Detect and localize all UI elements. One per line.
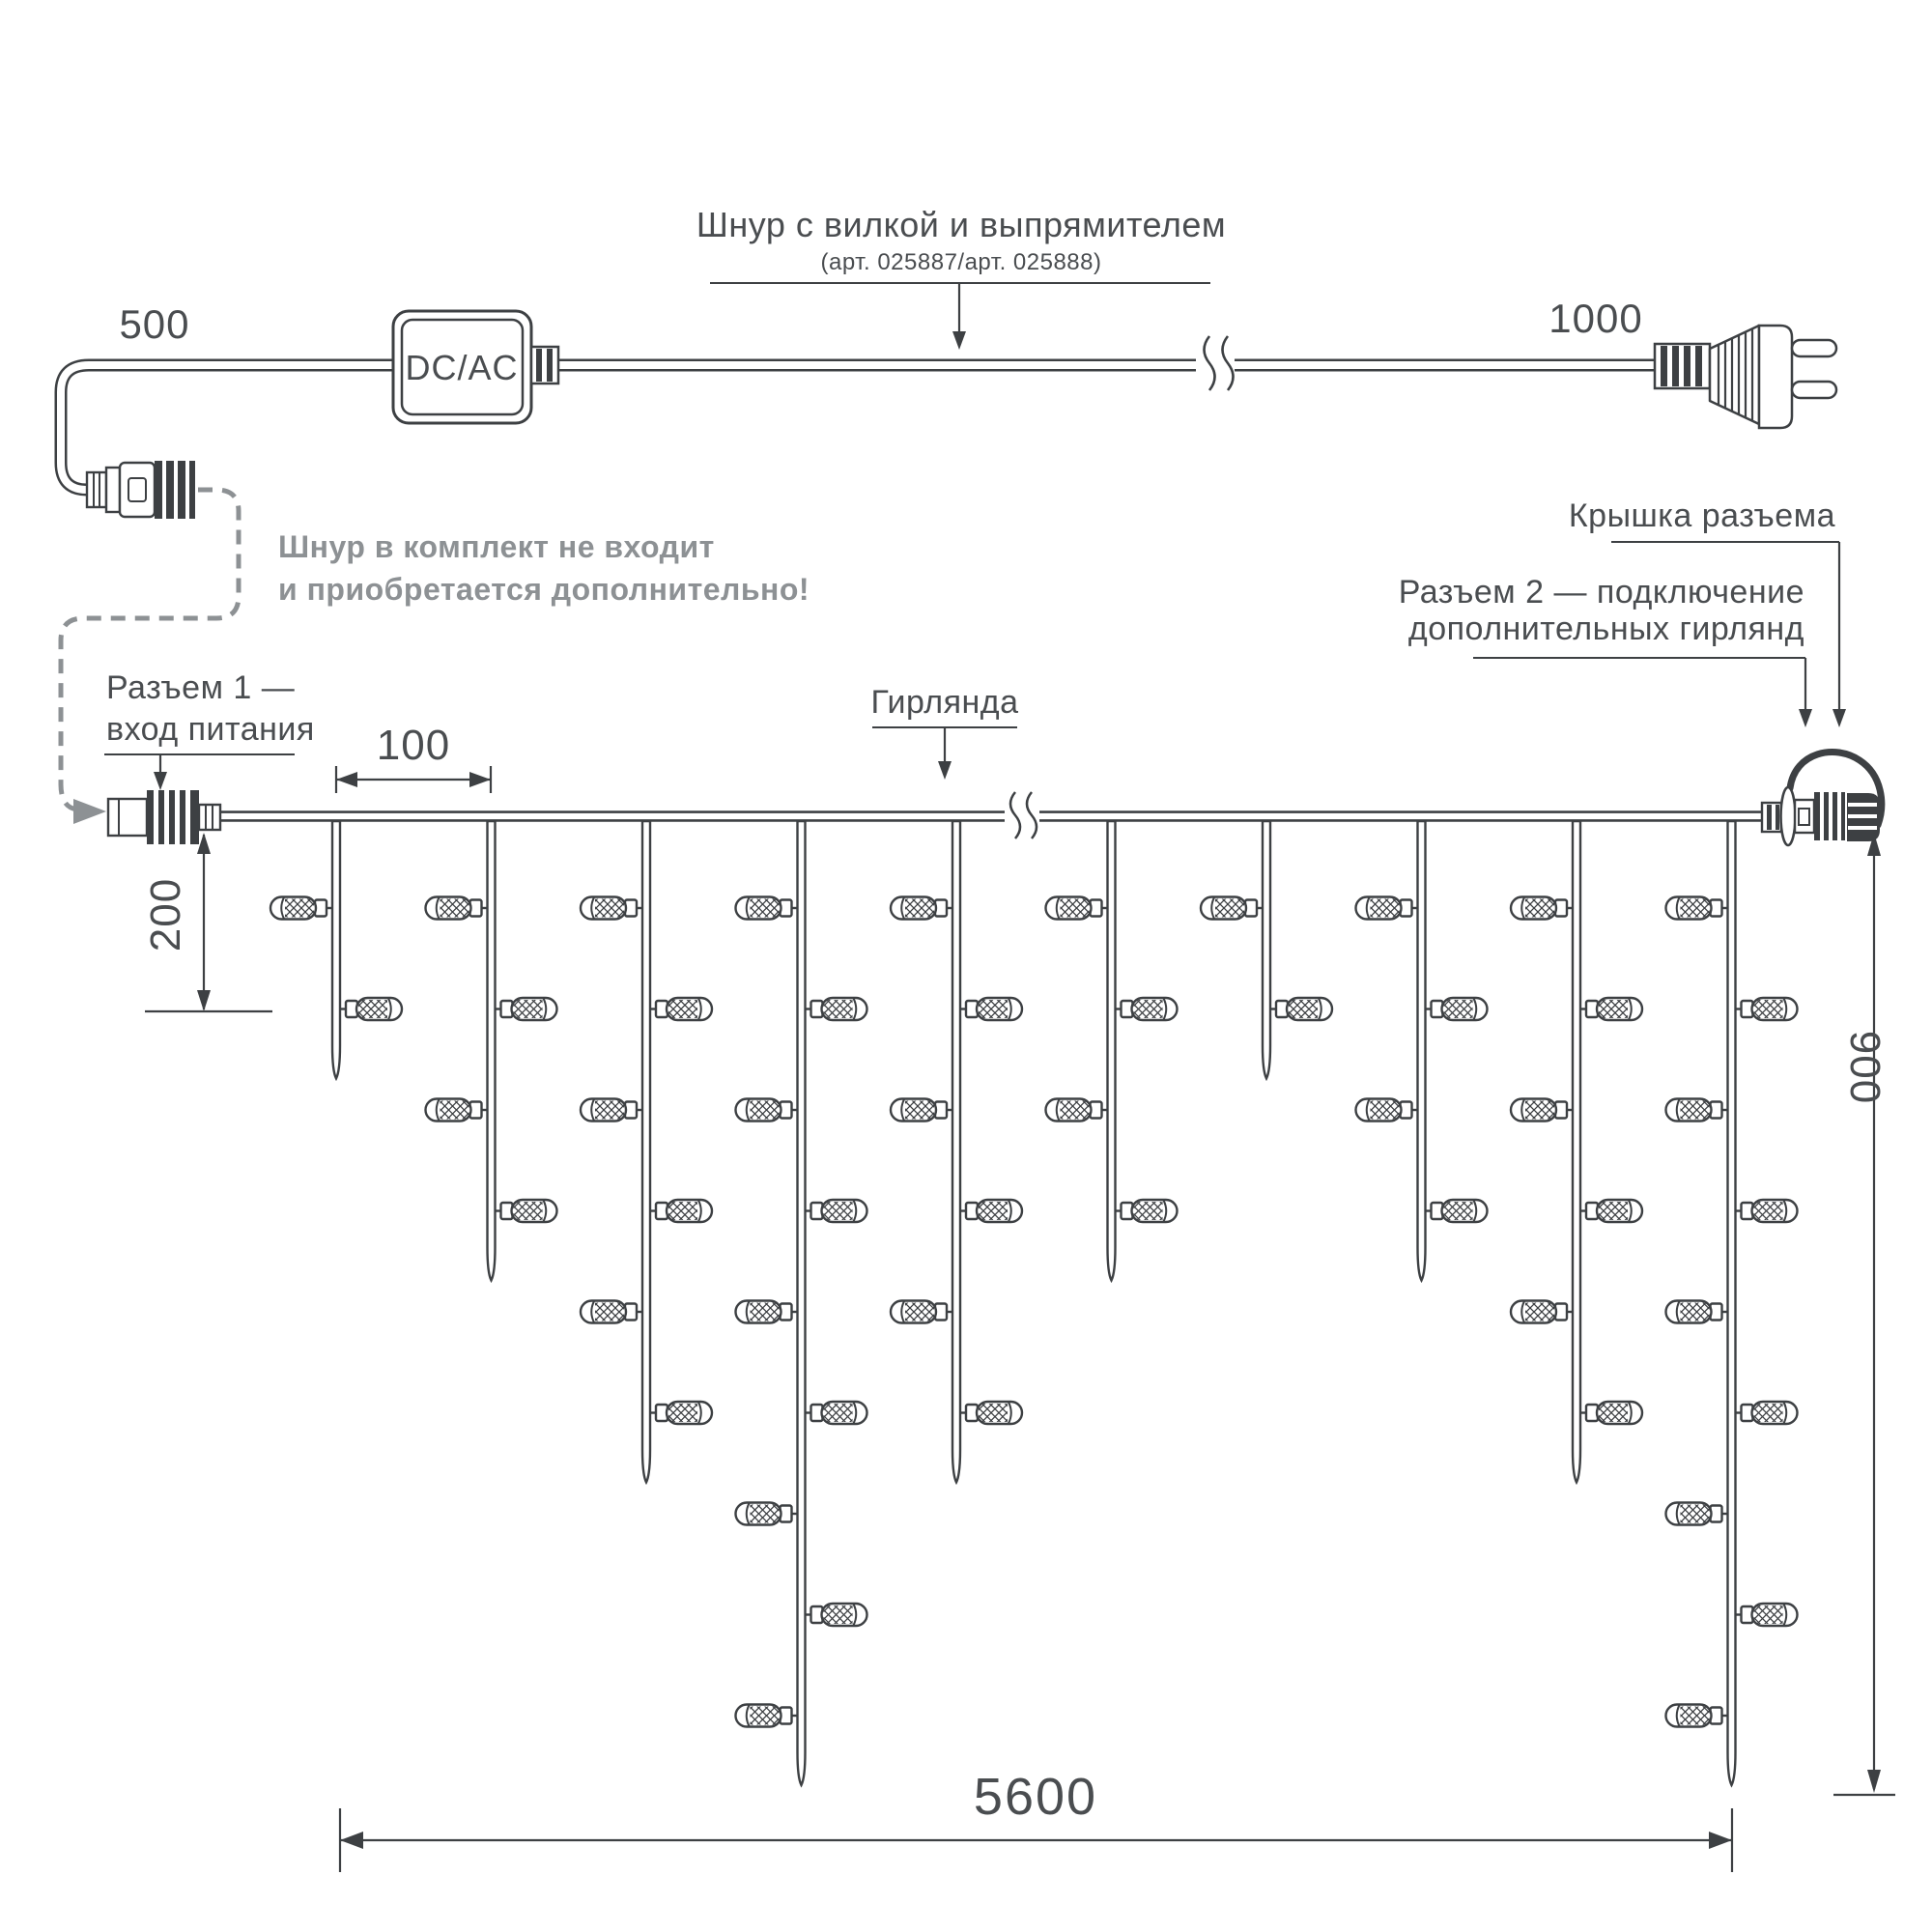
bulb-right-icon: [1270, 998, 1332, 1020]
power-cord-connector: [87, 461, 195, 519]
bulb-right-icon: [1736, 1604, 1798, 1626]
bulb-right-icon: [1426, 998, 1488, 1020]
arrow-down-icon: [1833, 709, 1846, 727]
bulb-left-icon: [1666, 1705, 1728, 1727]
connector1-label-line2: вход питания: [106, 711, 315, 748]
bulb-right-icon: [806, 998, 867, 1020]
connector2-callout: Разъем 2 — подключение дополнительных ги…: [1399, 574, 1812, 727]
note-line2: и приобретается дополнительно!: [278, 572, 810, 607]
bulb-right-icon: [1736, 998, 1798, 1020]
garland-drop: [1263, 821, 1270, 1079]
connector2-label-line1: Разъем 2 — подключение: [1399, 574, 1804, 611]
cord-title-callout: Шнур с вилкой и выпрямителем (арт. 02588…: [696, 205, 1226, 350]
bulb-right-icon: [806, 1200, 867, 1222]
bulb-left-icon: [1511, 1099, 1573, 1122]
bulb-right-icon: [960, 1200, 1022, 1222]
cord-break-icon: [1196, 336, 1235, 392]
bulb-right-icon: [650, 1200, 712, 1222]
bulb-right-icon: [960, 1402, 1022, 1424]
bulb-right-icon: [1426, 1200, 1488, 1222]
bulb-left-icon: [426, 897, 488, 920]
bulb-left-icon: [581, 1301, 642, 1323]
dimension-5600: 5600: [340, 1768, 1732, 1872]
arrow-down-icon: [1799, 709, 1812, 727]
bulb-right-icon: [1116, 1200, 1178, 1222]
garland-connector-2: [1762, 753, 1882, 845]
dashed-connection-path: [61, 490, 239, 824]
bulb-right-icon: [650, 1402, 712, 1424]
diagram-canvas: DC/AC 500 1000 Шнур с: [0, 0, 1932, 1932]
note-not-included: Шнур в комплект не входит и приобретаетс…: [278, 529, 810, 607]
bulb-right-icon: [1116, 998, 1178, 1020]
bulb-left-icon: [1666, 1503, 1728, 1525]
bulb-left-icon: [1666, 1301, 1728, 1323]
bulb-left-icon: [736, 1301, 798, 1323]
garland-drop: [488, 821, 496, 1281]
bulb-right-icon: [806, 1402, 867, 1424]
garland-drop: [952, 821, 960, 1483]
bulb-right-icon: [340, 998, 402, 1020]
dcac-adapter: DC/AC: [393, 311, 558, 423]
bulb-left-icon: [891, 897, 952, 920]
bulb-right-icon: [1736, 1200, 1798, 1222]
arrow-down-icon: [952, 331, 966, 350]
bulb-left-icon: [1046, 897, 1108, 920]
bulb-left-icon: [1356, 1099, 1418, 1122]
garland-drop: [1418, 821, 1426, 1281]
arrow-down-icon: [154, 772, 167, 790]
bulb-left-icon: [891, 1301, 952, 1323]
bulb-right-icon: [960, 998, 1022, 1020]
dashed-arrow-icon: [73, 799, 106, 824]
bulb-left-icon: [270, 897, 332, 920]
dim-500-label: 500: [119, 301, 189, 347]
bulb-left-icon: [581, 1099, 642, 1122]
bulb-right-icon: [1580, 998, 1642, 1020]
dim-1000-label: 1000: [1548, 296, 1642, 341]
bulb-left-icon: [1511, 1301, 1573, 1323]
note-line1: Шнур в комплект не входит: [278, 529, 715, 564]
cord-subtitle: (арт. 025887/арт. 025888): [821, 249, 1102, 275]
bulb-left-icon: [1356, 897, 1418, 920]
wire-break-icon: [1005, 792, 1039, 838]
dimension-200: 200: [142, 833, 272, 1011]
bulb-left-icon: [581, 897, 642, 920]
garland-drop: [798, 821, 806, 1785]
dim-900-label: 900: [1841, 1031, 1889, 1104]
garland-drop: [1728, 821, 1736, 1785]
connector1-callout: Разъем 1 — вход питания: [104, 669, 315, 790]
bulb-left-icon: [1201, 897, 1263, 920]
dim-200-label: 200: [142, 878, 189, 952]
cord-title: Шнур с вилкой и выпрямителем: [696, 205, 1226, 244]
bulb-left-icon: [1666, 897, 1728, 920]
dim-5600-label: 5600: [974, 1768, 1097, 1826]
bulb-right-icon: [1580, 1402, 1642, 1424]
garland-drop: [642, 821, 650, 1483]
bulb-left-icon: [1666, 1099, 1728, 1122]
bulb-right-icon: [496, 998, 557, 1020]
dim-100-label: 100: [377, 722, 450, 769]
bulb-left-icon: [736, 1705, 798, 1727]
bulb-right-icon: [650, 998, 712, 1020]
garland-drop: [1108, 821, 1116, 1281]
bulb-left-icon: [1046, 1099, 1108, 1122]
garland-drops: [270, 821, 1798, 1785]
bulb-left-icon: [1511, 897, 1573, 920]
bulb-left-icon: [736, 897, 798, 920]
connector1-label-line1: Разъем 1 —: [106, 669, 295, 706]
bulb-right-icon: [1736, 1402, 1798, 1424]
dimension-900: 900: [1833, 833, 1895, 1795]
garland-callout: Гирлянда: [870, 684, 1018, 780]
bulb-right-icon: [1580, 1200, 1642, 1222]
power-plug: [1655, 326, 1836, 428]
bulb-left-icon: [426, 1099, 488, 1122]
arrow-down-icon: [938, 761, 952, 780]
bulb-left-icon: [736, 1503, 798, 1525]
garland-drop: [1573, 821, 1580, 1483]
bulb-right-icon: [496, 1200, 557, 1222]
bulb-left-icon: [891, 1099, 952, 1122]
cap-label: Крышка разъема: [1569, 497, 1835, 534]
connector2-label-line2: дополнительных гирлянд: [1408, 611, 1804, 647]
bulb-left-icon: [736, 1099, 798, 1122]
garland-drop: [332, 821, 340, 1079]
bulb-right-icon: [806, 1604, 867, 1626]
dcac-label: DC/AC: [405, 348, 518, 387]
technical-diagram-garland: DC/AC 500 1000 Шнур с: [0, 0, 1932, 1932]
garland-label: Гирлянда: [870, 684, 1018, 721]
dimension-100: 100: [336, 722, 491, 793]
power-cord: [61, 336, 1655, 490]
